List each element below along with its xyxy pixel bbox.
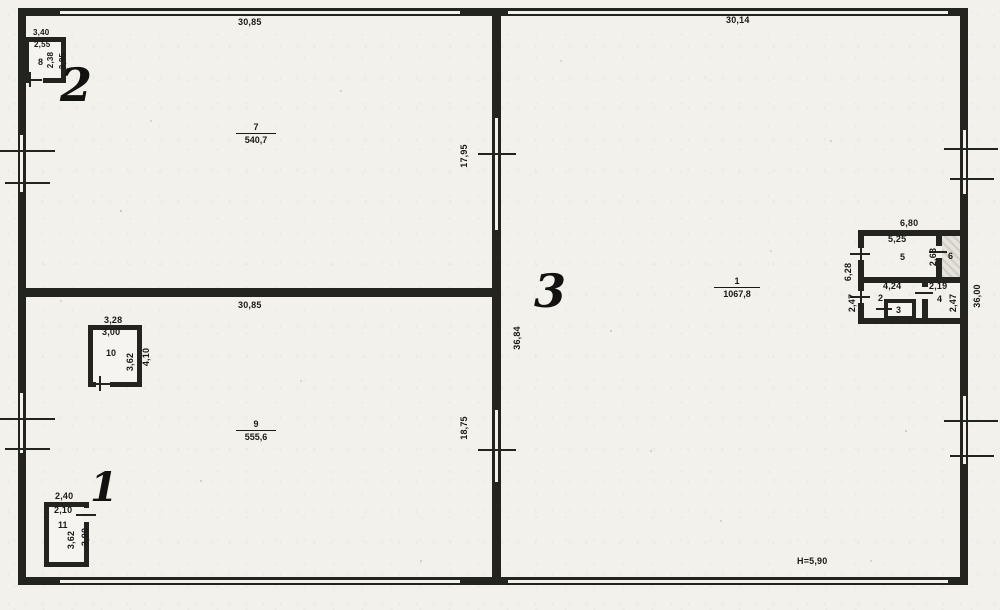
room7-number: 7	[236, 122, 276, 134]
room8-number: 8	[38, 57, 43, 67]
room2-number: 2	[878, 293, 883, 303]
room9-area: 555,6	[236, 431, 276, 442]
window-center-upper	[493, 118, 500, 230]
room9-number: 9	[236, 419, 276, 431]
tick-left-upper-2	[5, 182, 50, 184]
wall-outer-right	[960, 8, 968, 585]
cluster-door-tick-2-4	[915, 292, 933, 294]
tick-right-lower-1	[944, 420, 998, 422]
room11-width-outer: 2,40	[55, 491, 73, 501]
dim-top-left-width: 30,85	[238, 17, 262, 27]
handwritten-mark-3: 3	[534, 268, 566, 314]
room5-width-inner: 5,25	[888, 234, 906, 244]
window-center-lower	[493, 410, 500, 482]
room10-number: 10	[106, 348, 116, 358]
room3-door-tick	[876, 308, 892, 310]
room10-door-tick-v	[99, 376, 101, 391]
tick-right-lower-2	[950, 455, 994, 457]
room3-number: 3	[896, 305, 901, 315]
handwritten-mark-2: 2	[60, 62, 92, 108]
room2-height: 2,47	[847, 289, 857, 317]
dim-center-height: 36,84	[512, 324, 522, 352]
room10-width-inner: 3,00	[102, 327, 120, 337]
handwritten-mark-1: 1	[90, 468, 118, 508]
room1-number: 1	[714, 276, 760, 288]
wall-left-half-divider	[18, 288, 501, 297]
dim-top-right-width: 30,14	[726, 15, 750, 25]
cluster-door-tick-room5-v	[860, 247, 862, 260]
dim-left-lower-height: 18,75	[459, 414, 469, 442]
room7-area: 540,7	[236, 134, 276, 145]
cluster-divider-2-4	[922, 277, 928, 324]
room8-door-tick-v	[29, 72, 31, 87]
tick-left-lower-1	[0, 418, 55, 420]
room4-height: 2,47	[948, 289, 958, 317]
window-left-lower	[18, 393, 25, 453]
window-band-top-left	[60, 9, 460, 16]
room8-door-tick-h	[20, 79, 42, 81]
room10-height-outer: 4,10	[141, 343, 151, 371]
window-right-lower	[961, 396, 968, 464]
tick-left-lower-2	[5, 448, 50, 450]
tick-right-upper-1	[944, 148, 998, 150]
dim-right-height: 36,00	[972, 282, 982, 310]
window-band-bottom-right	[508, 578, 948, 585]
room11-height-inner: 3,62	[66, 526, 76, 554]
room1-area-label: 1 1067,8	[714, 276, 760, 299]
floor-plan-scan: 3,40 2,55 8 2,38 3,85 2 7 540,7 9 555,6 …	[0, 0, 1000, 610]
cluster-height-total: 6,28	[843, 258, 853, 286]
scan-noise	[0, 0, 2, 2]
tick-center-upper	[478, 153, 516, 155]
cluster-width-outer: 6,80	[900, 218, 918, 228]
room7-area-label: 7 540,7	[236, 122, 276, 145]
room2-width-inner: 4,24	[883, 281, 901, 291]
room4-number: 4	[937, 294, 942, 304]
dim-left-upper-height: 17,95	[459, 142, 469, 170]
tick-left-upper-1	[0, 150, 55, 152]
room9-area-label: 9 555,6	[236, 419, 276, 442]
dim-mid-left-width: 30,85	[238, 300, 262, 310]
room8-width-outer: 3,40	[33, 28, 49, 37]
room10-height-inner: 3,62	[125, 348, 135, 376]
room6-number: 6	[948, 251, 953, 261]
room11-height-outer: 3,90	[80, 523, 90, 551]
room11-width-inner: 2,10	[54, 505, 72, 515]
tick-center-lower	[478, 449, 516, 451]
window-band-bottom-left	[60, 578, 460, 585]
window-right-upper	[961, 130, 968, 194]
room1-area: 1067,8	[714, 288, 760, 299]
room10-width-outer: 3,28	[104, 315, 122, 325]
room4-width-inner: 2,19	[929, 281, 947, 291]
cluster-door-tick-room2-v	[860, 290, 862, 303]
room5-height: 2,63	[928, 243, 938, 271]
tick-right-upper-2	[950, 178, 994, 180]
ceiling-height-note: H=5,90	[797, 556, 827, 566]
room8-height-inner: 2,38	[46, 46, 56, 74]
room11-door-tick	[76, 514, 96, 516]
room5-number: 5	[900, 252, 905, 262]
